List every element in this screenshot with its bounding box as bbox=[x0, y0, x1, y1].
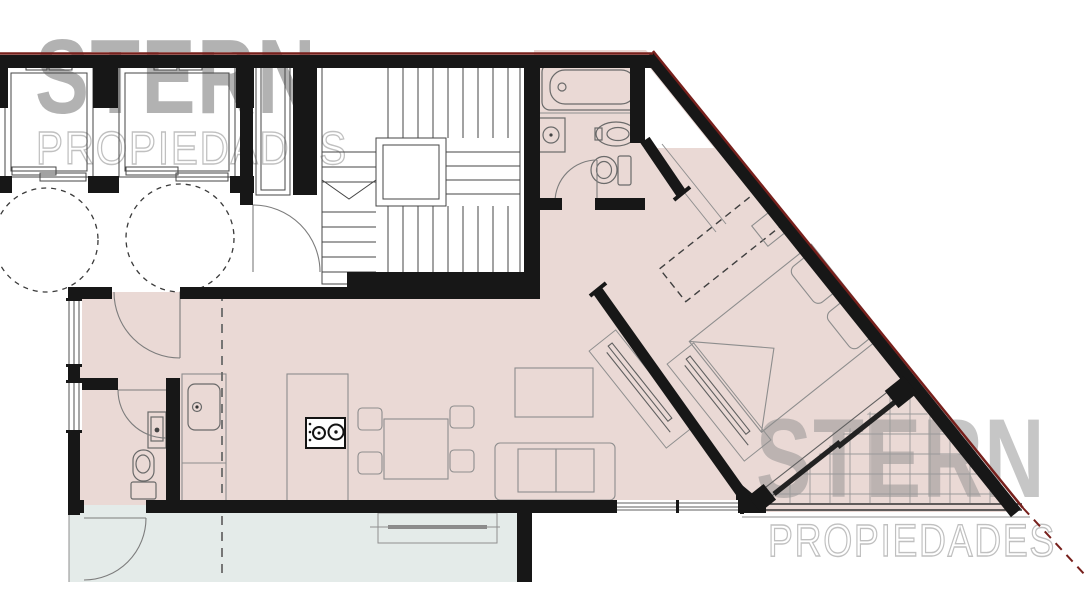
brand-text: STERN bbox=[35, 18, 317, 136]
bathroom-right-wall bbox=[630, 55, 645, 143]
stair-direction-arrow bbox=[322, 180, 376, 199]
left-window-2 bbox=[66, 380, 82, 433]
floor-plan-page: STERN PROPIEDADES STERN PROPIEDADES bbox=[0, 0, 1086, 608]
floor-plan: STERN PROPIEDADES STERN PROPIEDADES bbox=[0, 0, 1086, 608]
powder-wall bbox=[80, 378, 118, 390]
turning-circle-1 bbox=[0, 188, 98, 292]
stair-treads-top bbox=[388, 66, 508, 138]
watermark-bottom-right: STERN PROPIEDADES bbox=[756, 396, 1056, 566]
stair-right-wall bbox=[524, 55, 540, 287]
brand-subtitle-text: PROPIEDADES bbox=[768, 515, 1056, 566]
balcony-side-wall bbox=[517, 505, 532, 582]
turning-circle-2 bbox=[126, 184, 234, 292]
stair-left-wall bbox=[240, 55, 253, 205]
left-window-1 bbox=[66, 298, 82, 367]
stair-door-arc bbox=[253, 205, 320, 272]
stair-treads-right bbox=[446, 152, 520, 194]
bottom-window bbox=[613, 500, 742, 513]
cooktop-icon bbox=[306, 418, 345, 448]
bottom-wall bbox=[68, 500, 84, 513]
stair-core bbox=[376, 138, 446, 206]
top-wall bbox=[0, 55, 655, 68]
